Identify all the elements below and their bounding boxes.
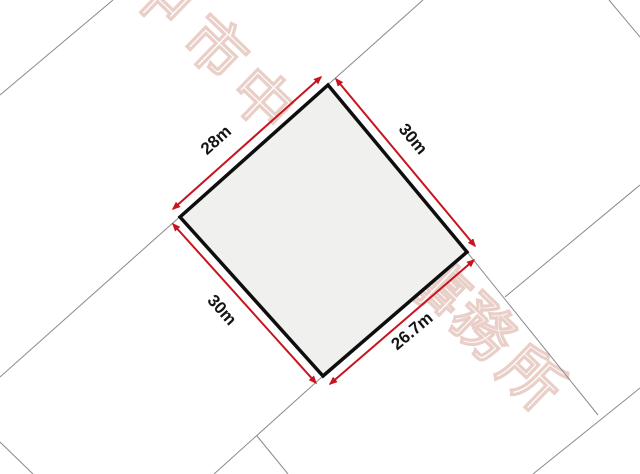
cadastral-parcel-diagram: 中 市 中 事 務 所 <box>0 0 640 474</box>
boundary-line-bottom-left-corner <box>0 442 33 474</box>
boundary-line-bottom-branch <box>257 436 288 474</box>
parcel-map-svg: 中 市 中 事 務 所 <box>0 0 640 474</box>
boundary-line-top-left-corner <box>0 0 113 95</box>
boundary-line-right-branch-up <box>505 185 640 297</box>
dimension-label-top-right: 30m <box>395 120 431 158</box>
boundary-line-top-right-corner <box>609 0 640 37</box>
dimension-label-bottom-left: 30m <box>204 291 241 329</box>
boundary-line-below-parcel <box>214 376 323 474</box>
dimension-label-top-left: 28m <box>197 122 235 159</box>
